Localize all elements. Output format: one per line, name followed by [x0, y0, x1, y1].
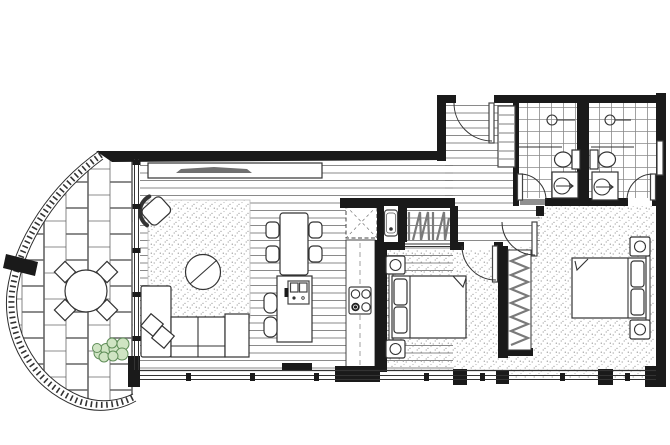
dining-chair-icon	[309, 246, 322, 262]
dining-chair-icon	[309, 222, 322, 238]
wall-entry-north-west	[437, 95, 456, 103]
dining-chair-icon	[266, 246, 279, 262]
bedside-table-icon	[630, 320, 650, 339]
cooktop-icon	[349, 287, 372, 314]
sink-icon	[285, 281, 310, 304]
dining-table-icon	[280, 213, 308, 275]
fridge-space-icon	[346, 206, 377, 238]
wall-kitchen-bedroom1	[375, 240, 387, 372]
bedside-table-icon	[386, 256, 405, 274]
bar-stool-icon	[264, 317, 277, 337]
dining-chair-icon	[266, 222, 279, 238]
wall-bedroom-divider	[498, 246, 508, 358]
bedside-table-icon	[386, 340, 405, 358]
pillow-icon	[394, 307, 407, 333]
mirror-cabinet	[657, 141, 663, 175]
floor-plan-page	[0, 0, 670, 445]
vanity-basin-icon	[552, 172, 578, 198]
laundry-tub-icon	[384, 206, 398, 242]
pillow-icon	[631, 289, 644, 315]
vanity-basin-icon	[592, 172, 618, 200]
wall-north-east	[494, 95, 656, 103]
pillow-icon	[394, 279, 407, 305]
wall-east	[656, 93, 666, 387]
toilet-icon	[590, 150, 616, 169]
bedside-table-icon	[630, 237, 650, 256]
linen-shelves-icon	[498, 106, 515, 167]
shrub-icon	[107, 338, 129, 361]
wall-entry-step	[437, 95, 446, 161]
kitchen-bench	[346, 206, 377, 368]
bar-stool-icon	[264, 293, 277, 313]
outdoor-round-table-icon	[65, 270, 107, 312]
toilet-icon	[555, 150, 581, 169]
threshold	[520, 199, 545, 205]
pillow-icon	[631, 261, 644, 287]
wardrobe2 hanging-clothes-icon	[508, 250, 531, 350]
round-coffee-table-icon	[186, 255, 221, 290]
hallway-floorboards	[453, 206, 540, 246]
floor-plan-svg	[0, 0, 670, 445]
